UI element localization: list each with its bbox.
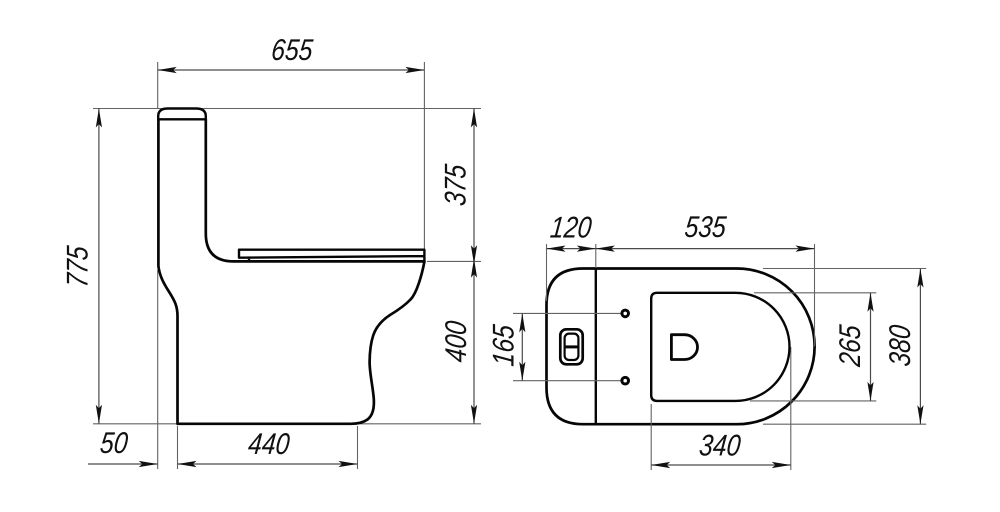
svg-text:535: 535 [683,210,728,244]
svg-text:380: 380 [883,323,917,368]
svg-text:50: 50 [99,426,131,460]
svg-text:165: 165 [486,322,520,367]
svg-text:400: 400 [439,319,473,364]
svg-text:775: 775 [60,244,94,289]
svg-text:440: 440 [247,427,292,461]
svg-text:265: 265 [833,323,867,369]
svg-text:120: 120 [549,210,594,244]
svg-text:340: 340 [698,428,743,462]
svg-text:375: 375 [438,162,472,207]
svg-text:655: 655 [270,33,315,67]
